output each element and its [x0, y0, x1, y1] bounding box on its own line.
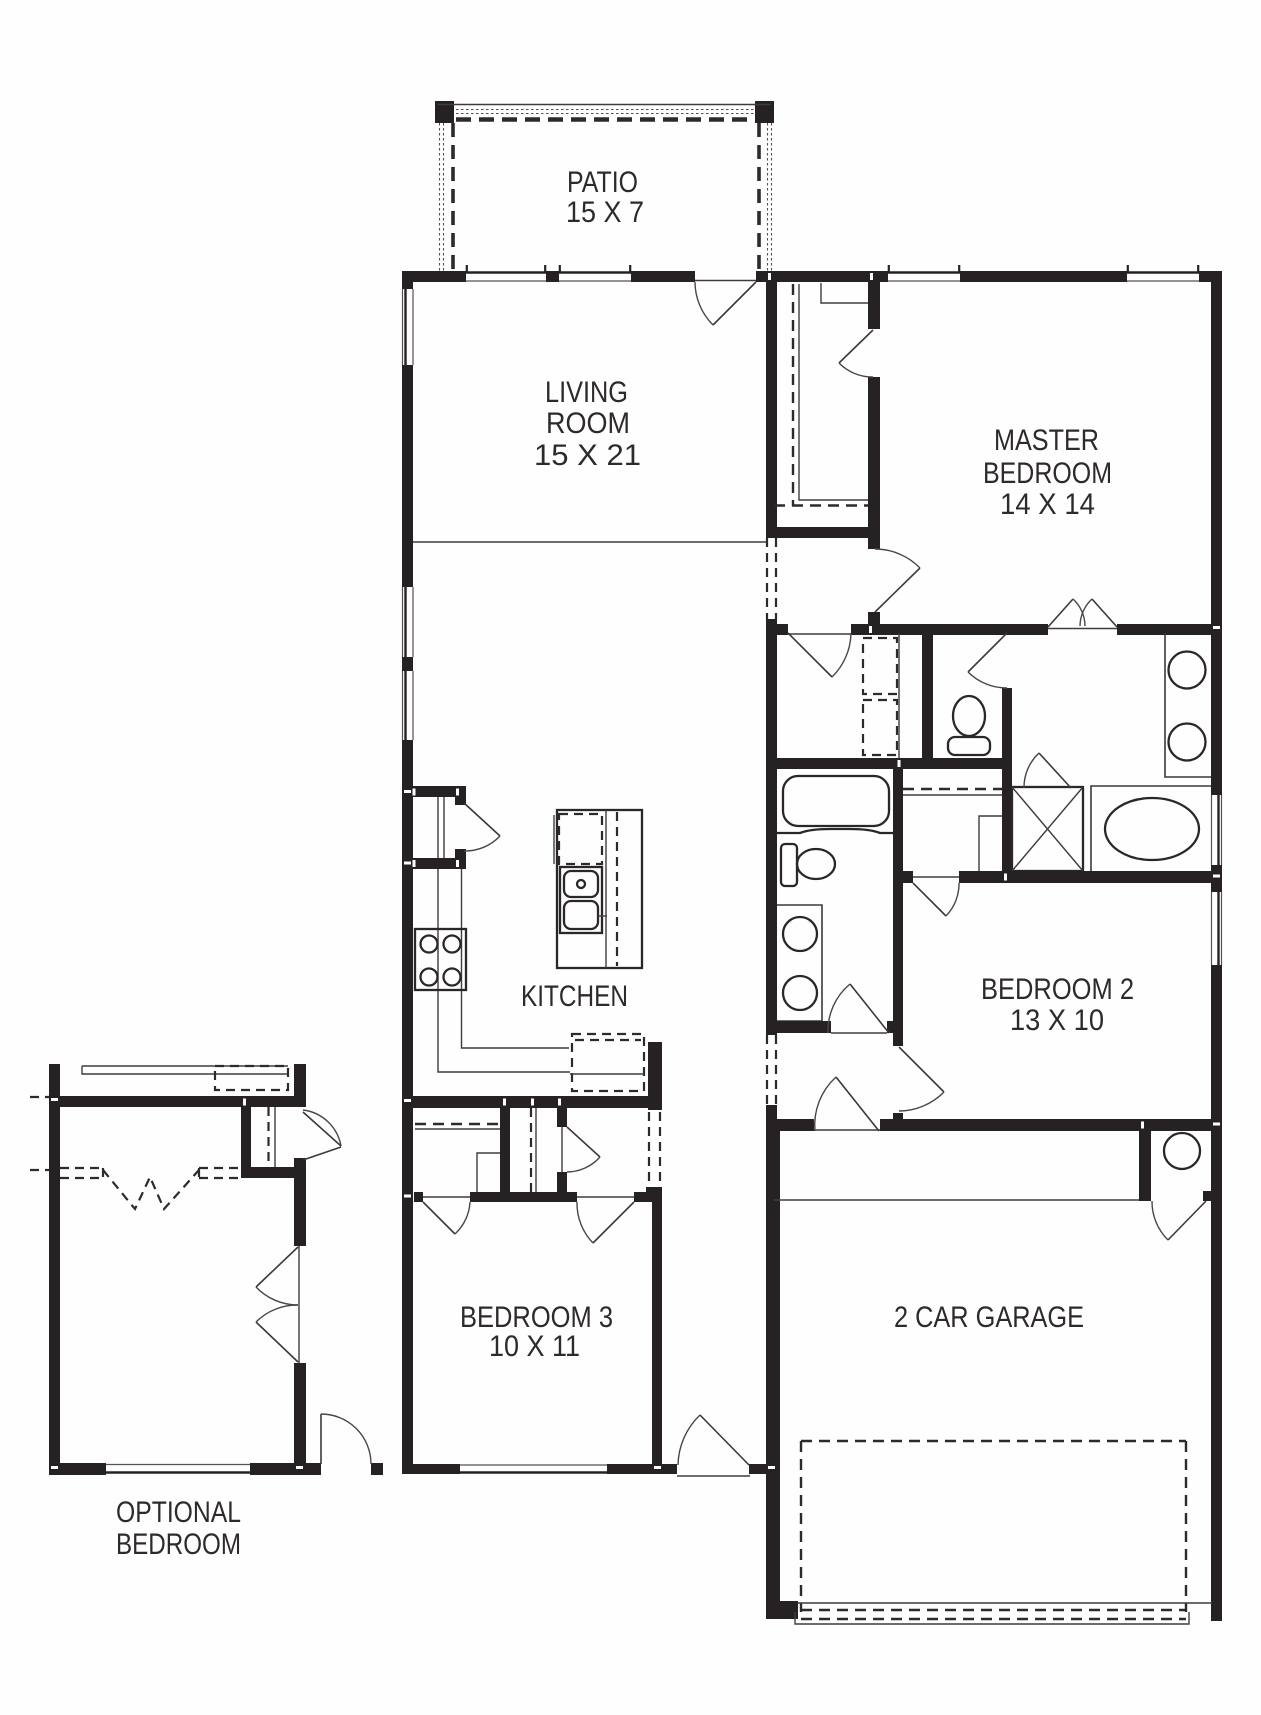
svg-text:KITCHEN: KITCHEN [521, 980, 628, 1013]
svg-text:MASTER: MASTER [994, 424, 1099, 457]
svg-text:10 X 11: 10 X 11 [489, 1330, 580, 1363]
svg-text:15 X 7: 15 X 7 [566, 196, 644, 229]
svg-text:PATIO: PATIO [567, 166, 638, 199]
svg-text:2 CAR GARAGE: 2 CAR GARAGE [894, 1301, 1084, 1334]
svg-text:BEDROOM 2: BEDROOM 2 [981, 973, 1134, 1006]
svg-text:14 X 14: 14 X 14 [1000, 488, 1095, 521]
svg-text:15 X 21: 15 X 21 [534, 439, 641, 472]
svg-text:BEDROOM: BEDROOM [116, 1528, 241, 1561]
svg-text:13 X 10: 13 X 10 [1010, 1004, 1104, 1037]
svg-text:OPTIONAL: OPTIONAL [116, 1496, 241, 1529]
svg-text:BEDROOM: BEDROOM [983, 457, 1112, 490]
svg-text:ROOM: ROOM [546, 407, 630, 440]
svg-text:LIVING: LIVING [545, 376, 628, 409]
